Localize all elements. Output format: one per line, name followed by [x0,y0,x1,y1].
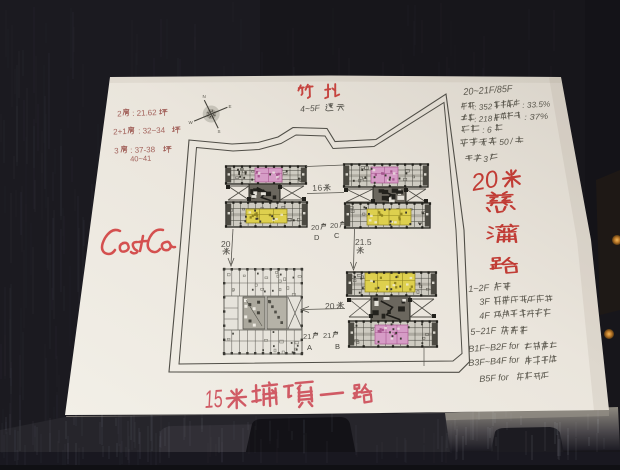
svg-text:3F: 3F [479,296,491,307]
svg-text:20: 20 [311,223,319,232]
svg-text:C: C [334,231,340,240]
svg-text:20: 20 [221,239,231,249]
svg-text:21: 21 [323,331,331,340]
svg-text:20: 20 [325,301,335,311]
svg-text:3: 3 [483,154,489,164]
svg-text:: 218: : 218 [474,114,493,124]
svg-text:: 21.62: : 21.62 [132,108,157,118]
svg-text:: 37%: : 37% [524,112,548,122]
svg-text:2+1: 2+1 [113,127,127,136]
svg-text:20: 20 [468,166,501,198]
svg-text:: 6: : 6 [482,124,492,134]
svg-text:5~21F: 5~21F [470,325,497,337]
svg-text:4~5F: 4~5F [300,103,321,114]
svg-text:N: N [203,94,206,99]
svg-text:1~2F: 1~2F [468,283,490,294]
svg-text:50: 50 [499,136,509,146]
svg-text:21.5: 21.5 [355,237,372,247]
svg-text:15: 15 [204,385,224,414]
svg-text:40~41: 40~41 [130,154,151,164]
svg-text:20: 20 [330,221,338,230]
svg-text:4F: 4F [479,310,491,321]
svg-text:B: B [335,342,340,351]
svg-text:S: S [218,129,221,134]
svg-text:: 33.5%: : 33.5% [522,100,550,110]
svg-text:6: 6 [317,182,323,192]
svg-text:D: D [314,233,320,242]
svg-text:: 352: : 352 [474,102,493,112]
svg-text:: 32~34: : 32~34 [138,126,166,136]
svg-text:B5F for: B5F for [479,372,510,384]
svg-text:E: E [229,104,232,109]
svg-text:A: A [307,343,312,352]
svg-text:21: 21 [303,332,311,341]
